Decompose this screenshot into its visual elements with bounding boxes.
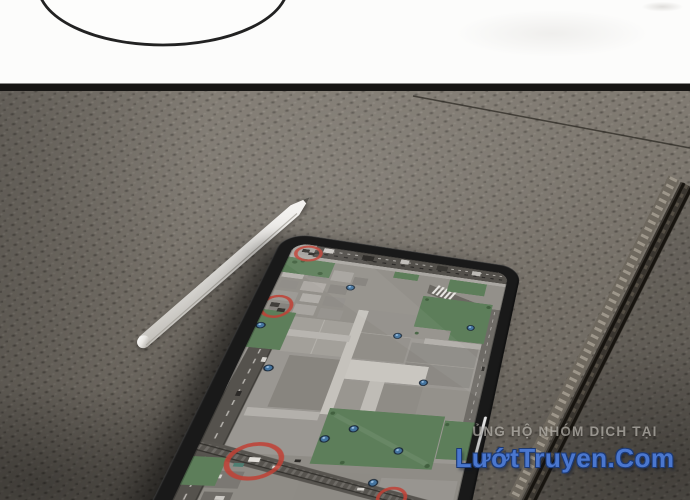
satellite-map[interactable] bbox=[142, 242, 509, 500]
screen-edge-shade bbox=[142, 242, 509, 500]
comic-panel: ỦNG HỘ NHÓM DỊCH TẠI LướtTruyen.Com bbox=[0, 0, 690, 500]
bezel-reflection bbox=[474, 416, 487, 453]
tablet-layer bbox=[0, 0, 690, 500]
tablet-device bbox=[113, 232, 522, 500]
tablet-screen[interactable] bbox=[142, 242, 509, 500]
